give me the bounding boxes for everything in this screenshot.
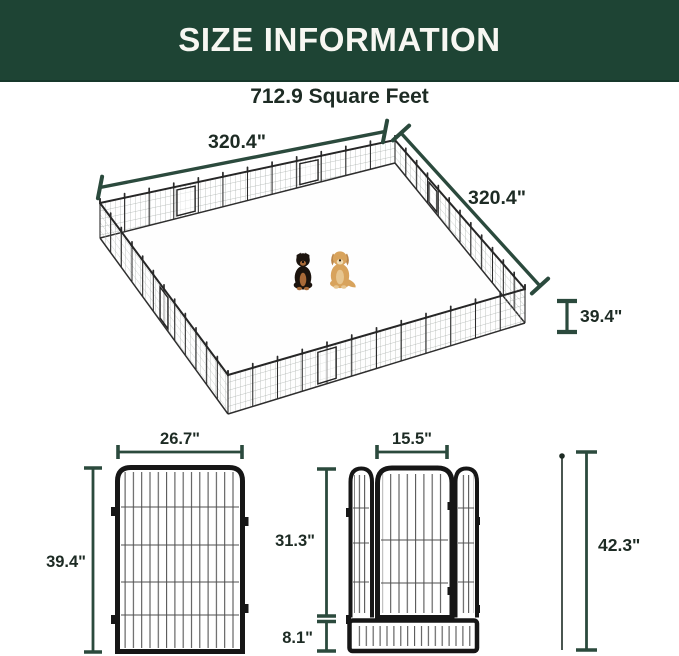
size-diagram-canvas: 320.4" 320.4" 39.4" 26.7" 39.4" [0,0,679,656]
door-panel-diagram: 15.5" 31.3" 8.1" [275,430,640,651]
panel-diagram: 26.7" 39.4" [46,430,248,652]
dim-label-pen-height: 39.4" [580,306,622,326]
black-dog-illustration [294,253,313,291]
dim-label-panel-width: 26.7" [160,430,200,448]
dim-label-side-left: 320.4" [208,131,266,153]
size-information-page: SIZE INFORMATION 712.9 Square Feet [0,0,679,656]
dim-label-bottom-height: 8.1" [282,629,313,647]
dim-label-door-width: 15.5" [392,430,432,448]
dim-label-side-right: 320.4" [468,187,526,209]
dim-label-door-height: 31.3" [275,532,315,550]
dim-label-panel-height: 39.4" [46,553,86,571]
pen-illustration [100,136,525,414]
dim-label-total-height: 42.3" [598,535,640,555]
stake-top-dot [559,453,565,459]
